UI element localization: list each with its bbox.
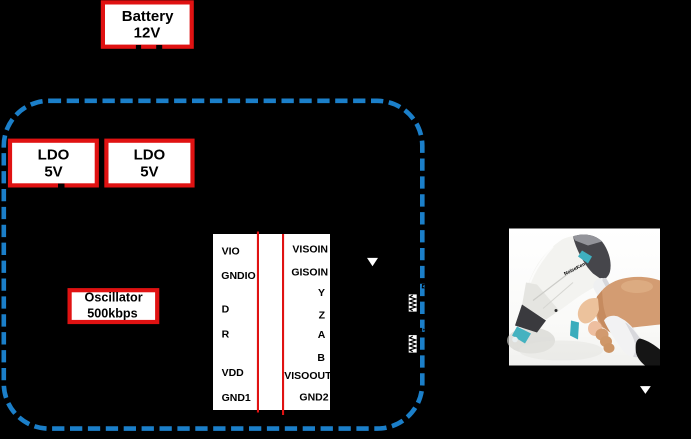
svg-text:GND2: GND2 — [299, 392, 328, 404]
svg-text:GND1: GND1 — [222, 392, 251, 404]
svg-text:VIO: VIO — [222, 245, 240, 257]
svg-text:R: R — [222, 329, 230, 341]
svg-text:5V: 5V — [140, 163, 158, 180]
svg-text:VISOIN: VISOIN — [292, 244, 328, 256]
svg-text:VDD: VDD — [222, 367, 245, 379]
svg-text:LDO: LDO — [38, 147, 70, 164]
svg-text:Y: Y — [318, 287, 325, 299]
svg-text:Z: Z — [319, 309, 326, 321]
svg-text:VISOOUT: VISOOUT — [284, 370, 332, 382]
svg-text:D: D — [222, 303, 230, 315]
svg-text:GNDIO: GNDIO — [221, 270, 255, 282]
svg-text:500kbps: 500kbps — [87, 306, 137, 320]
svg-text:12V: 12V — [134, 24, 161, 41]
svg-text:LDO: LDO — [134, 147, 166, 164]
svg-text:A: A — [318, 329, 326, 341]
svg-text:GISOIN: GISOIN — [291, 267, 328, 279]
svg-text:Battery: Battery — [122, 8, 174, 25]
svg-text:Oscillator: Oscillator — [85, 290, 143, 304]
svg-text:B: B — [317, 352, 325, 364]
svg-text:5V: 5V — [44, 163, 62, 180]
